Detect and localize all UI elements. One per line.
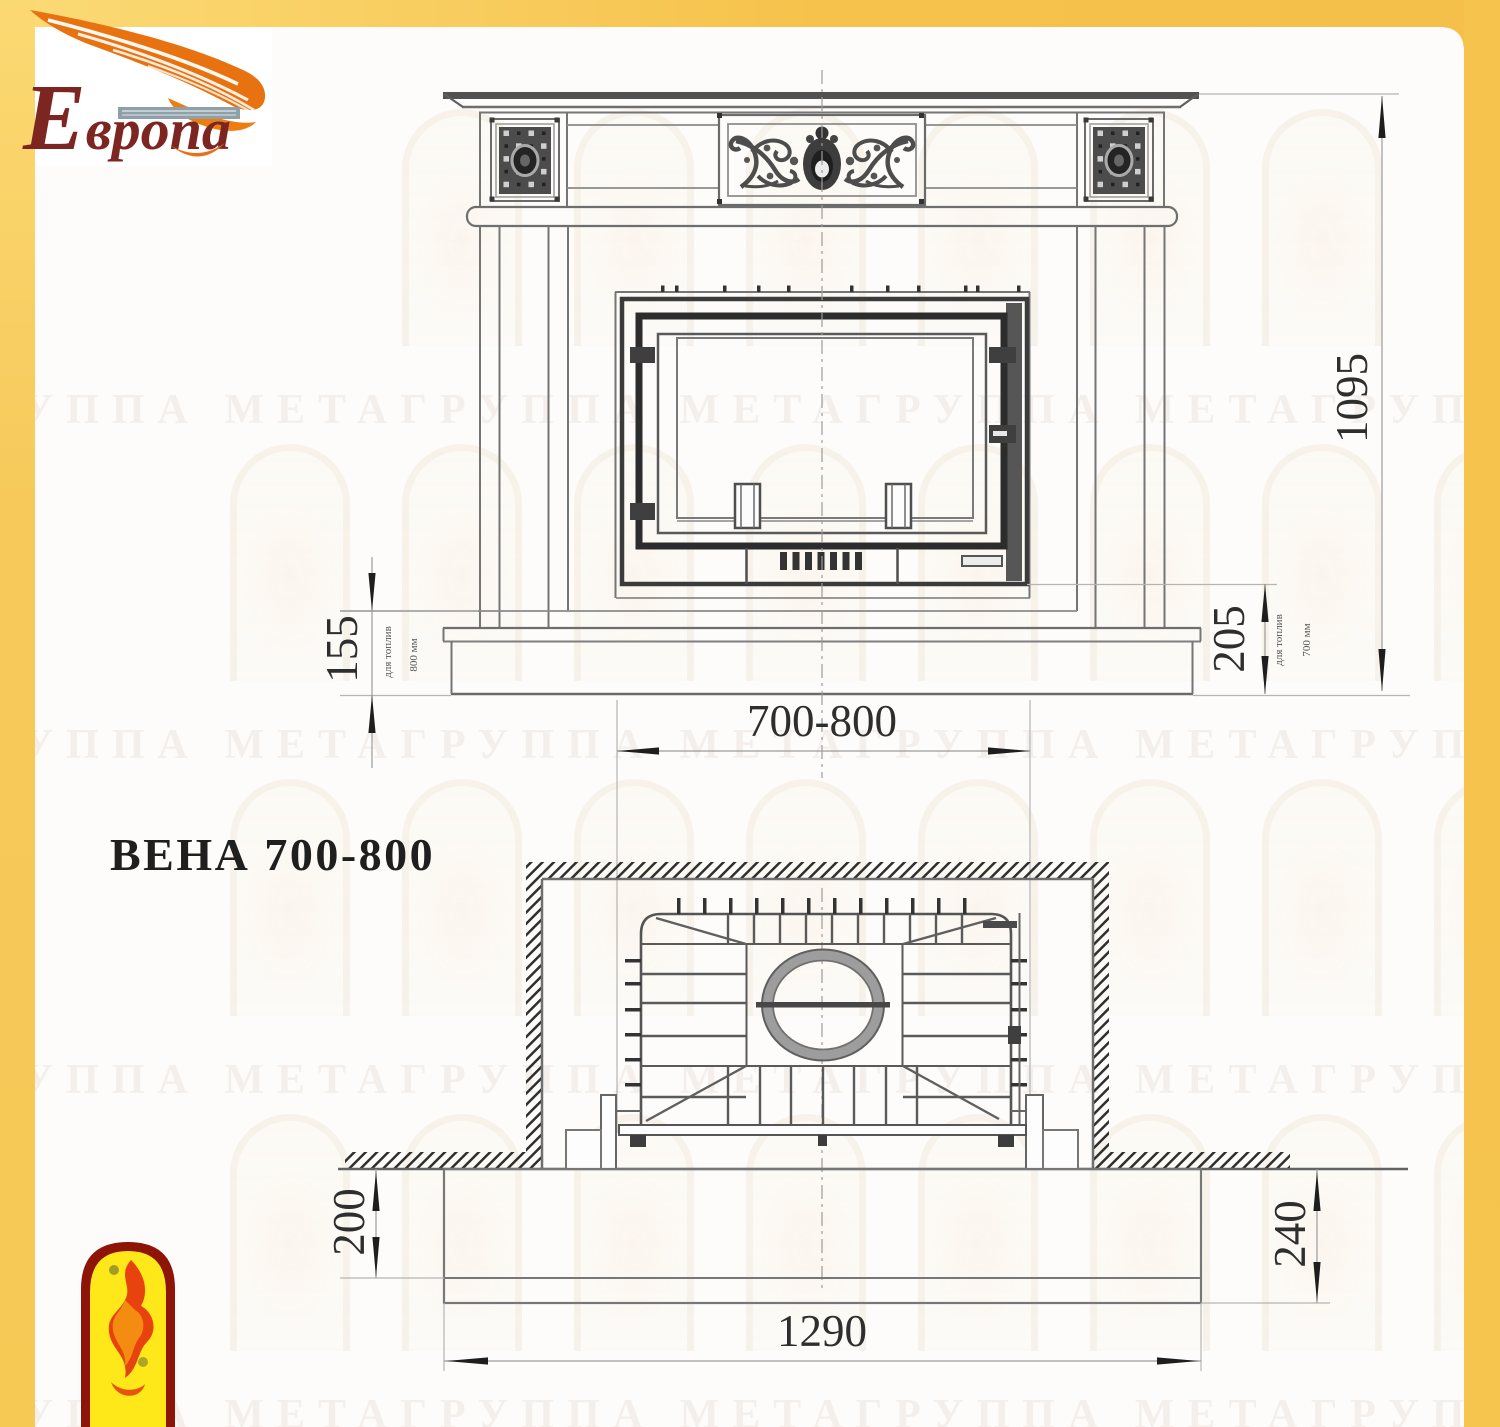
svg-text:800 мм: 800 мм [408, 638, 420, 671]
svg-text:155: 155 [317, 615, 367, 683]
svg-text:240: 240 [1265, 1200, 1315, 1268]
svg-text:1095: 1095 [1327, 353, 1377, 443]
svg-text:для топлив: для топлив [1273, 614, 1285, 666]
svg-text:для топлив: для топлив [382, 626, 394, 678]
svg-text:700-800: 700-800 [747, 696, 897, 746]
svg-text:205: 205 [1204, 605, 1254, 673]
svg-text:700 мм: 700 мм [1301, 623, 1313, 656]
svg-text:1290: 1290 [777, 1306, 867, 1356]
svg-text:200: 200 [324, 1188, 374, 1256]
